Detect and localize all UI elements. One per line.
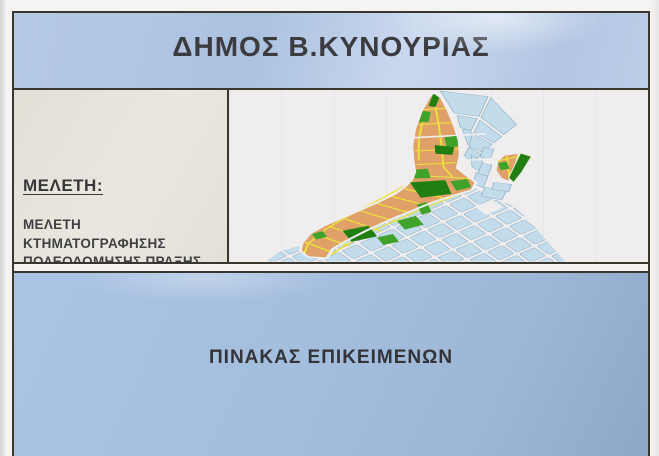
study-line: ΚΤΗΜΑΤΟΓΡΑΦΗΣΗΣ	[23, 235, 215, 254]
footer-title: ΠΙΝΑΚΑΣ ΕΠΙΚΕΙΜΕΝΩΝ	[209, 347, 453, 369]
map-panel	[227, 90, 648, 262]
study-line: ΜΕΛΕΤΗ	[23, 216, 215, 235]
content-row: ΜΕΛΕΤΗ: ΜΕΛΕΤΗ ΚΤΗΜΑΤΟΓΡΑΦΗΣΗΣ ΠΟΛΕΟΔΟΜΗ…	[14, 90, 648, 262]
header-banner: ΔΗΜΟΣ Β.ΚΥΝΟΥΡΙΑΣ	[14, 13, 648, 90]
footer-banner: ΠΙΝΑΚΑΣ ΕΠΙΚΕΙΜΕΝΩΝ	[14, 273, 648, 456]
photo-of-sign: ΔΗΜΟΣ Β.ΚΥΝΟΥΡΙΑΣ ΜΕΛΕΤΗ: ΜΕΛΕΤΗ ΚΤΗΜΑΤΟ…	[0, 0, 659, 456]
study-panel: ΜΕΛΕΤΗ: ΜΕΛΕΤΗ ΚΤΗΜΑΤΟΓΡΑΦΗΣΗΣ ΠΟΛΕΟΔΟΜΗ…	[14, 90, 227, 262]
planning-board: ΔΗΜΟΣ Β.ΚΥΝΟΥΡΙΑΣ ΜΕΛΕΤΗ: ΜΕΛΕΤΗ ΚΤΗΜΑΤΟ…	[12, 11, 650, 456]
divider-strip	[14, 262, 648, 273]
site-plan-map	[229, 90, 648, 262]
municipality-title: ΔΗΜΟΣ Β.ΚΥΝΟΥΡΙΑΣ	[172, 31, 489, 63]
study-heading: ΜΕΛΕΤΗ:	[23, 176, 215, 196]
green-space	[414, 169, 431, 179]
